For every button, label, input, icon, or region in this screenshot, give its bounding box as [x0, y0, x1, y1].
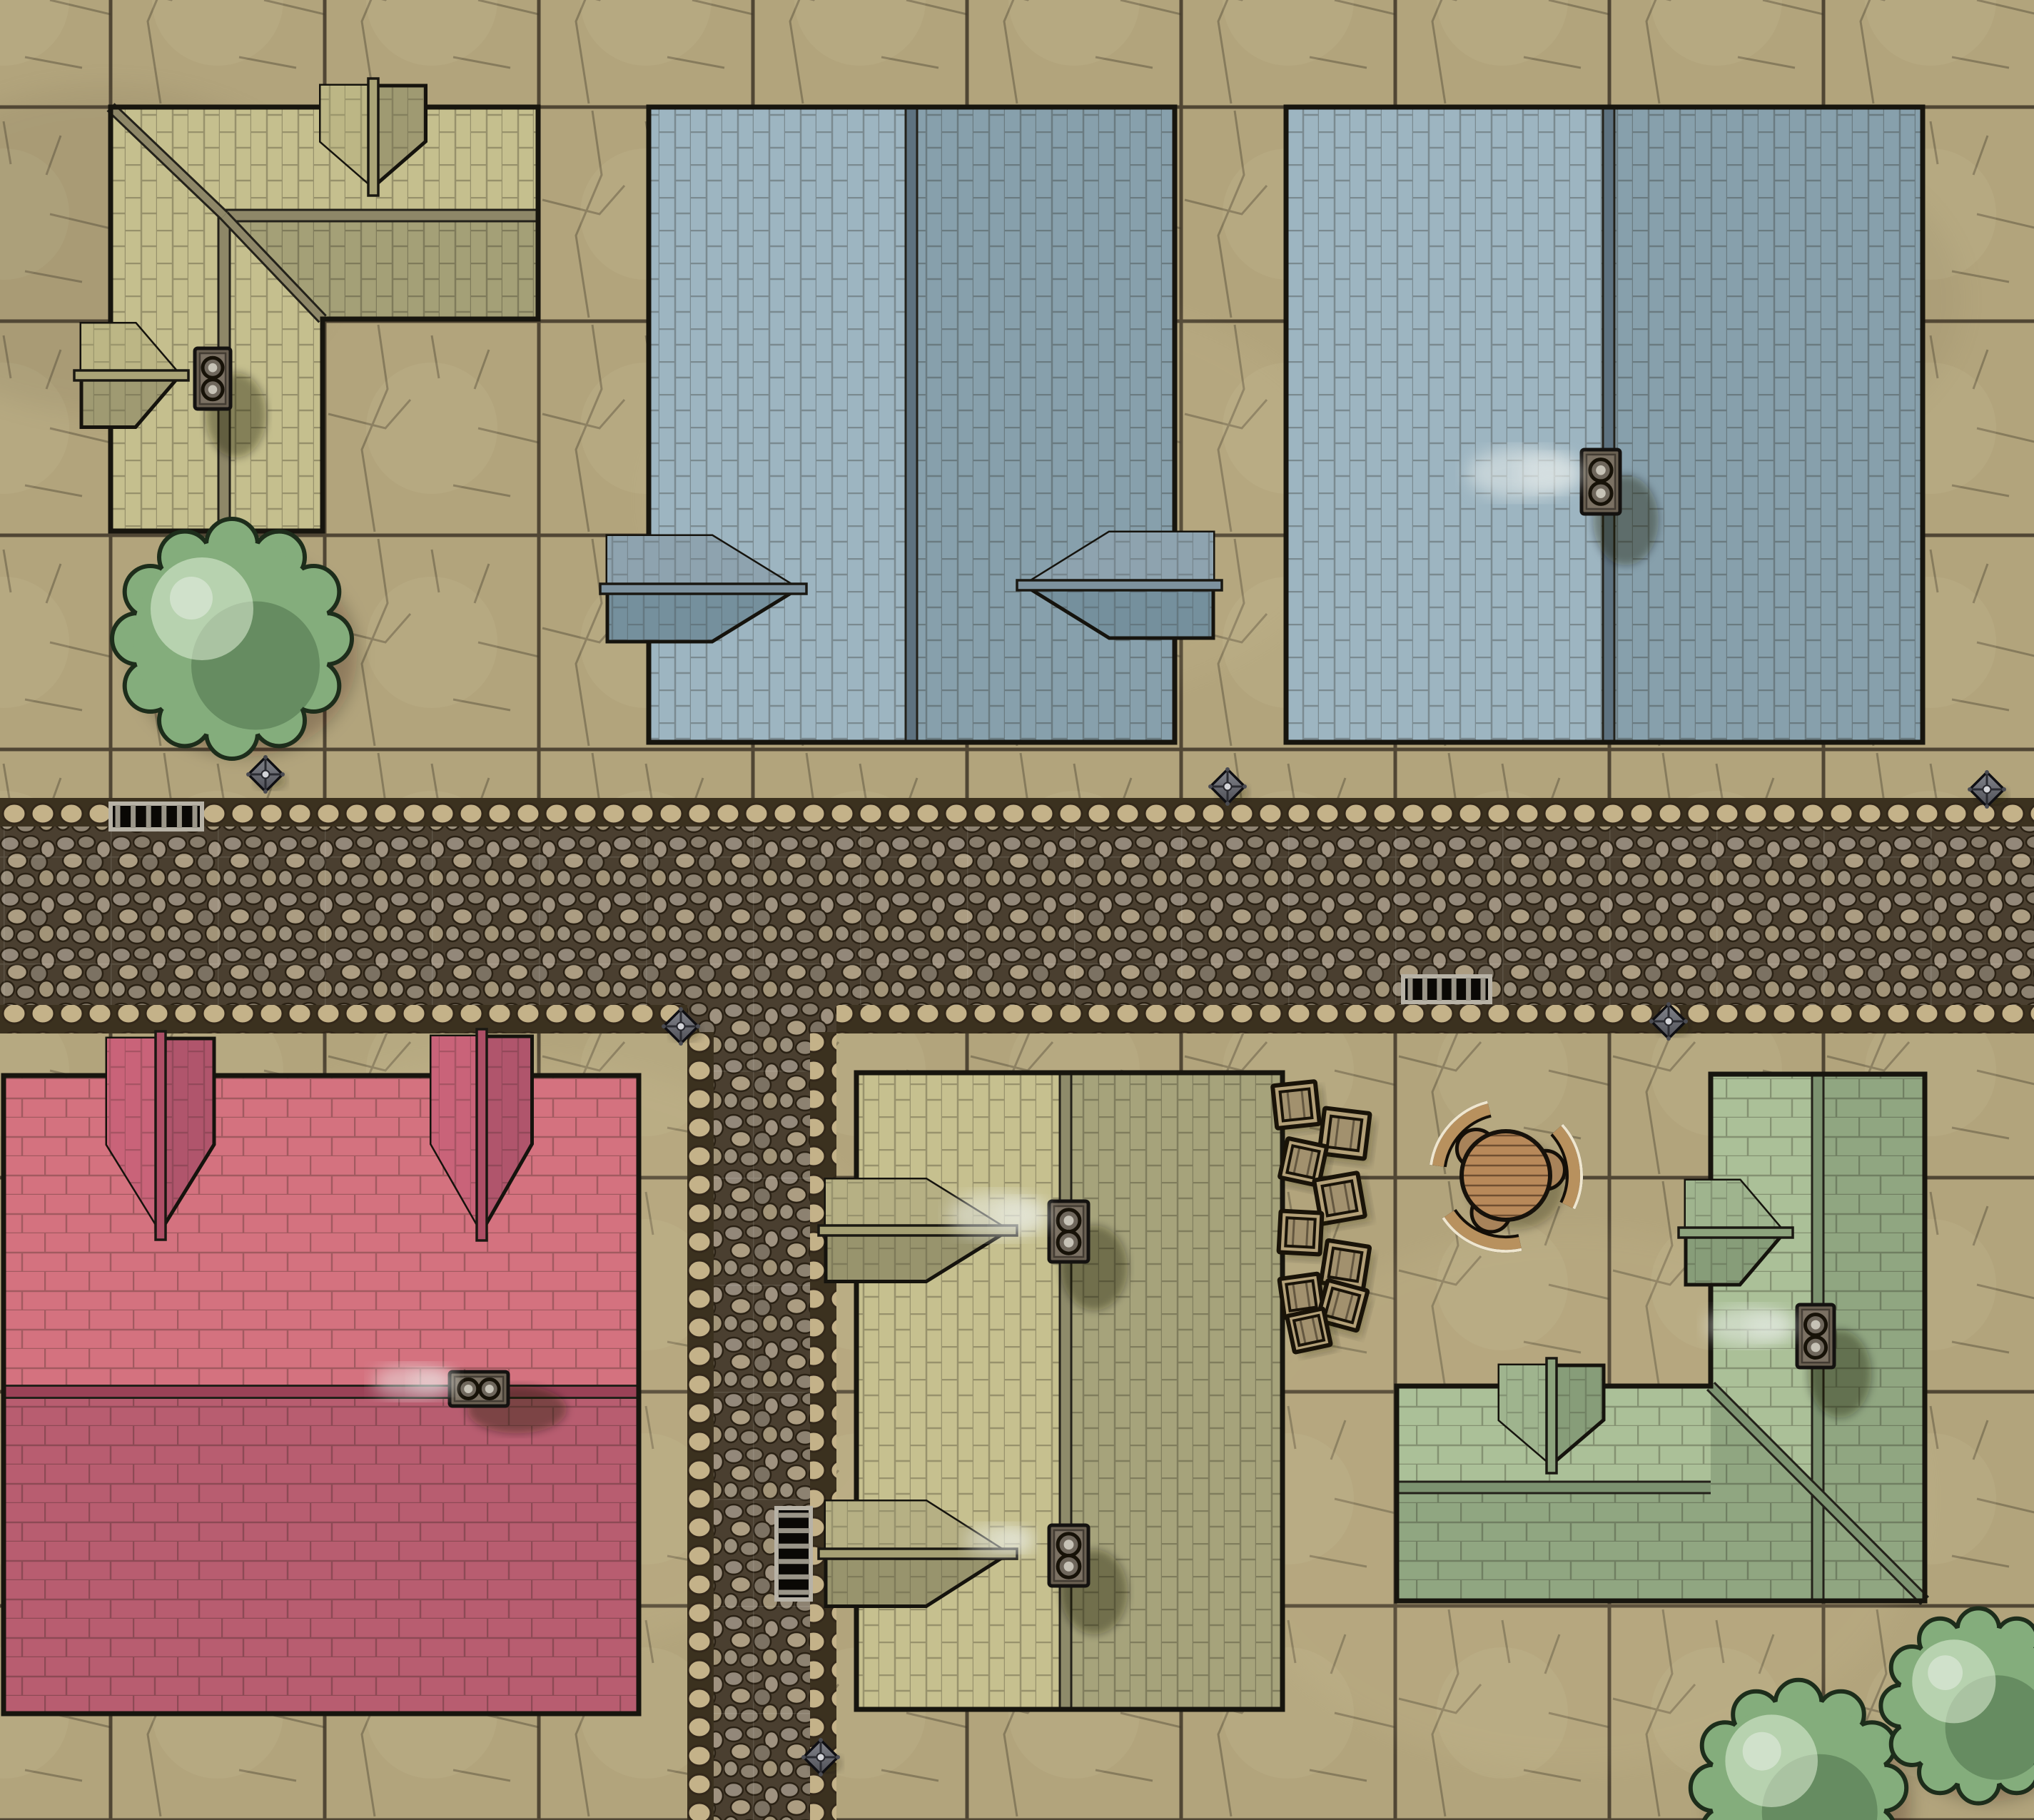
chimney-smoke-puff-1	[410, 1369, 455, 1395]
road-border-top-stones	[0, 798, 2034, 826]
marker-tip	[1666, 1036, 1671, 1041]
crate-panel	[1294, 1315, 1324, 1345]
drain-bottom-middle	[1403, 976, 1490, 1002]
marker-tip	[679, 1007, 683, 1011]
marker-tip	[1985, 804, 1989, 809]
crate-panel	[1287, 1146, 1319, 1178]
drain-top-left	[111, 804, 202, 829]
marker-tip	[1208, 784, 1213, 789]
chimney-olive-bottom-2-flue-core	[1064, 1540, 1074, 1549]
marker-tip	[1666, 1002, 1671, 1006]
chimney-red-flue-core	[464, 1385, 472, 1393]
road-border-vertical-0-stones	[687, 1032, 714, 1820]
bush-glint	[170, 577, 213, 620]
dormer-olive-left-ridge-board	[74, 370, 188, 380]
chimney-smoke-puff-0	[1518, 454, 1581, 492]
road-border-bottom-1-stones	[836, 1005, 2034, 1033]
chimney-olive-bottom-2-flue-core	[1064, 1562, 1074, 1572]
dormer-blue-left-ridge-board	[600, 584, 806, 594]
marker-tip	[801, 1755, 806, 1759]
road-border-bottom-0-stones	[0, 1005, 687, 1033]
marker-tip	[679, 1041, 683, 1046]
battle-map	[0, 0, 2034, 1820]
crate-panel	[1285, 1218, 1315, 1247]
crate-4	[1278, 1211, 1327, 1260]
marker-tip	[246, 772, 251, 777]
roof-blue-right	[1286, 107, 1923, 742]
chimney-olive-L-flue-core	[208, 363, 218, 373]
chimney-olive-L-flue-core	[208, 385, 218, 395]
marker-hub	[817, 1754, 825, 1761]
marker-hub	[1665, 1018, 1673, 1026]
dormer-green-wing-ridge-board	[1547, 1358, 1557, 1473]
chimney-olive-bottom-1-flue-core	[1064, 1238, 1074, 1248]
dormer-red-left-ridge-board	[156, 1031, 166, 1240]
bush-glint	[1928, 1655, 1963, 1690]
marker-tip	[1985, 770, 1989, 774]
crate-panel	[1286, 1280, 1316, 1310]
chimney-red-flue-core	[485, 1385, 494, 1393]
chimney-olive-bottom-1-flue-core	[1064, 1215, 1074, 1225]
road-border-vertical-1-stones	[810, 1032, 836, 1820]
chimney-smoke-puff-3	[996, 1529, 1033, 1552]
road-horizontal-grid	[0, 825, 2034, 1006]
crate-0	[1272, 1081, 1326, 1134]
crate-panel	[1322, 1181, 1357, 1216]
marker-tip	[819, 1772, 823, 1776]
bush-glint	[1743, 1732, 1781, 1771]
marker-tip	[263, 789, 268, 794]
chimney-blue-right-flue-core	[1596, 488, 1606, 498]
chimney-blue-right-flue-core	[1596, 465, 1606, 475]
dormer-blue-right-ridge-board	[1017, 580, 1222, 590]
marker-tip	[1649, 1019, 1654, 1023]
marker-tip	[836, 1755, 840, 1759]
marker-tip	[1684, 1019, 1688, 1023]
marker-tip	[263, 755, 268, 759]
marker-tip	[819, 1738, 823, 1742]
marker-hub	[262, 771, 270, 779]
chimney-green-flue-core	[1811, 1343, 1820, 1352]
crate-panel	[1329, 1248, 1362, 1282]
crate-8	[1287, 1307, 1337, 1358]
chimney-smoke-puff-2	[993, 1198, 1048, 1233]
marker-tip	[1225, 767, 1230, 772]
marker-tip	[662, 1024, 666, 1028]
map-scene	[0, 0, 2034, 1820]
dormer-red-right-ridge-board	[477, 1029, 487, 1240]
crate-panel	[1327, 1116, 1362, 1151]
marker-hub	[1224, 783, 1232, 791]
marker-tip	[280, 772, 285, 777]
marker-hub	[677, 1023, 685, 1031]
dormer-olive-top-ridge-board	[368, 79, 378, 196]
roof-blue-middle	[649, 107, 1175, 742]
marker-tip	[696, 1024, 700, 1028]
marker-tip	[1225, 802, 1230, 806]
chimney-smoke-puff-4	[1746, 1311, 1794, 1341]
marker-tip	[1968, 787, 1972, 792]
marker-tip	[1243, 784, 1247, 789]
chimney-green-flue-core	[1811, 1320, 1820, 1330]
marker-tip	[2002, 787, 2006, 792]
dormer-green-left-ridge-board	[1679, 1228, 1793, 1238]
drain-vertical-road	[776, 1508, 811, 1599]
marker-hub	[1983, 786, 1991, 794]
crate-panel	[1280, 1089, 1312, 1121]
